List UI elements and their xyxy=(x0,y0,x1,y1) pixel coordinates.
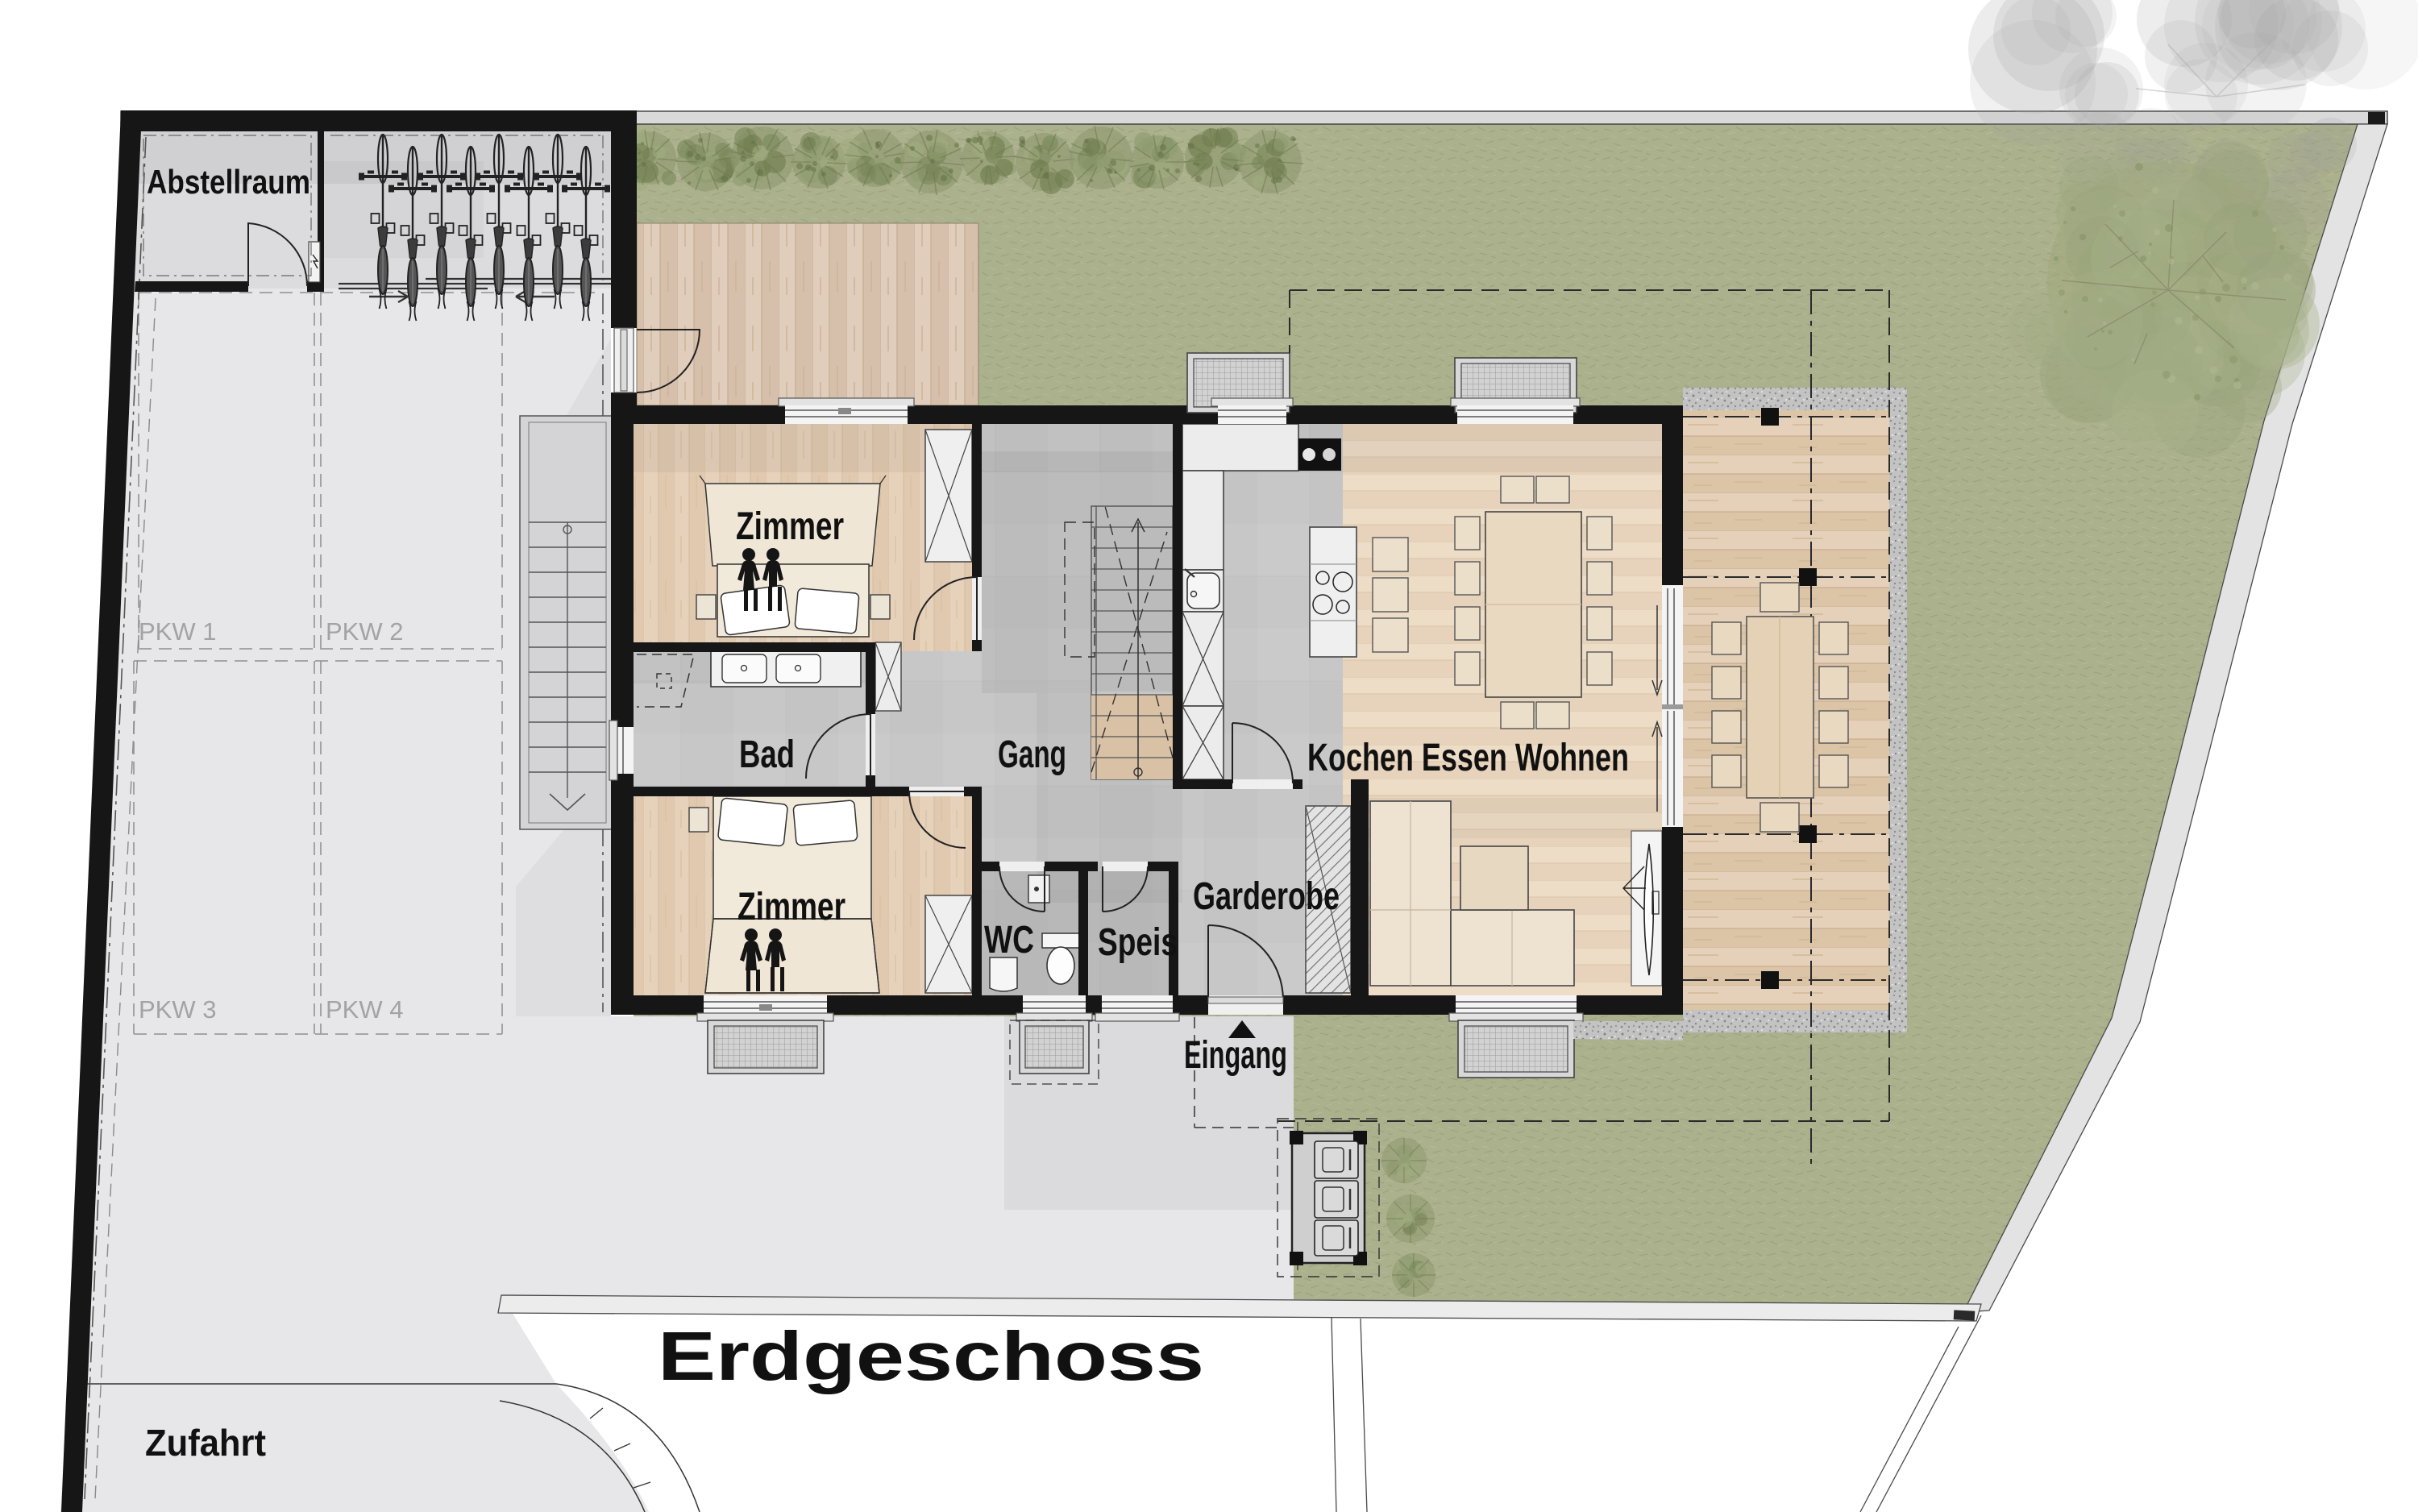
svg-text:Zufahrt: Zufahrt xyxy=(145,1422,266,1464)
svg-text:Garderobe: Garderobe xyxy=(1193,875,1340,918)
svg-text:Speis: Speis xyxy=(1098,921,1178,964)
svg-text:Kochen Essen Wohnen: Kochen Essen Wohnen xyxy=(1307,737,1629,779)
svg-text:Bad: Bad xyxy=(739,733,795,776)
svg-text:PKW 4: PKW 4 xyxy=(326,995,403,1024)
svg-text:Gang: Gang xyxy=(998,733,1066,776)
svg-text:Eingang: Eingang xyxy=(1184,1034,1287,1077)
svg-text:Zimmer: Zimmer xyxy=(737,886,845,928)
svg-text:PKW 1: PKW 1 xyxy=(139,617,216,646)
svg-text:Abstellraum: Abstellraum xyxy=(147,163,310,201)
svg-text:Erdgeschoss: Erdgeschoss xyxy=(658,1319,1204,1395)
svg-text:Zimmer: Zimmer xyxy=(736,505,844,548)
svg-text:WC: WC xyxy=(984,919,1034,962)
svg-text:PKW 2: PKW 2 xyxy=(326,617,403,646)
svg-text:PKW 3: PKW 3 xyxy=(139,995,216,1024)
